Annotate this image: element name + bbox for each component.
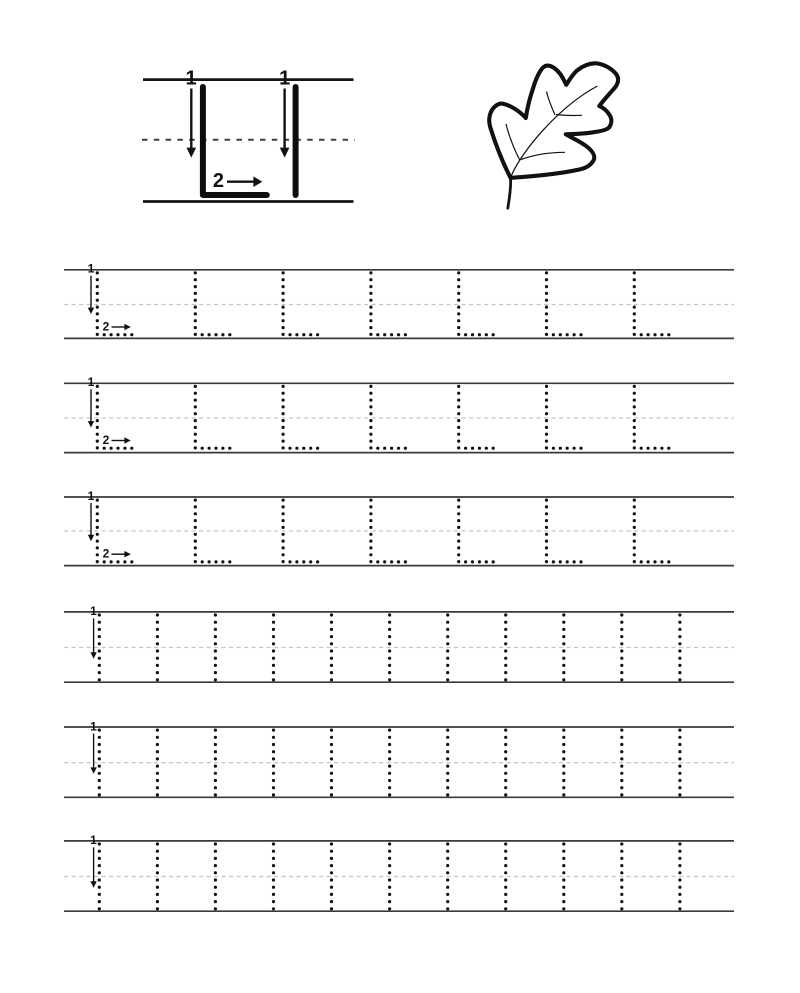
- svg-text:1: 1: [279, 67, 290, 89]
- svg-text:1: 1: [88, 262, 95, 276]
- svg-text:1: 1: [90, 833, 97, 847]
- svg-text:1: 1: [90, 604, 97, 618]
- svg-text:2: 2: [103, 433, 110, 447]
- svg-text:2: 2: [103, 547, 110, 561]
- svg-text:1: 1: [88, 375, 95, 389]
- svg-text:1: 1: [88, 489, 95, 503]
- svg-text:2: 2: [103, 319, 110, 333]
- svg-text:1: 1: [185, 67, 196, 89]
- svg-text:2: 2: [213, 170, 224, 192]
- svg-text:1: 1: [90, 719, 97, 733]
